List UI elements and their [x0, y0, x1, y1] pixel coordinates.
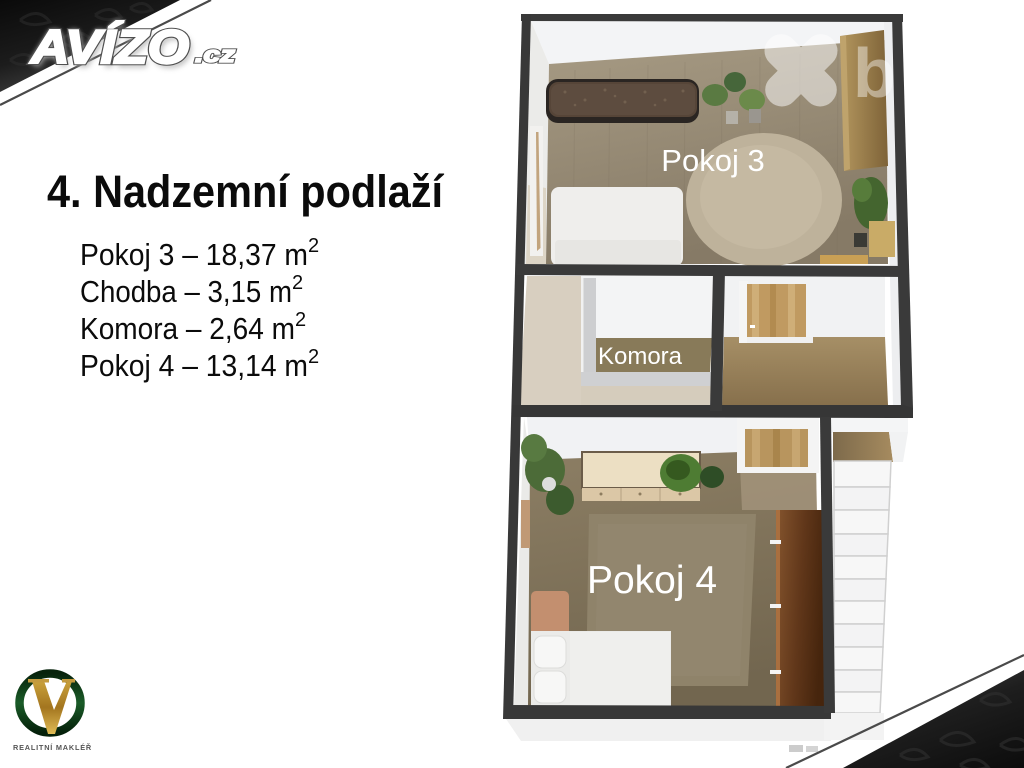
svg-text:.cz: .cz — [195, 42, 235, 67]
svg-text:AVÍZO: AVÍZO — [30, 20, 189, 73]
svg-text:Pokoj 3: Pokoj 3 — [661, 143, 764, 178]
svg-text:Pokoj 4 – 13,14 m2: Pokoj 4 – 13,14 m2 — [80, 346, 319, 383]
svg-text:Pokoj 4: Pokoj 4 — [587, 559, 717, 602]
svg-text:Chodba – 3,15 m2: Chodba – 3,15 m2 — [80, 272, 303, 309]
svg-text:Komora: Komora — [598, 343, 683, 370]
svg-text:b: b — [853, 34, 896, 112]
svg-text:Komora – 2,64 m2: Komora – 2,64 m2 — [80, 309, 306, 346]
svg-text:Pokoj 3 – 18,37 m2: Pokoj 3 – 18,37 m2 — [80, 235, 319, 272]
svg-text:4. Nadzemní podlaží: 4. Nadzemní podlaží — [47, 166, 444, 217]
svg-text:REALITNÍ MAKLÉŘ: REALITNÍ MAKLÉŘ — [13, 743, 92, 752]
